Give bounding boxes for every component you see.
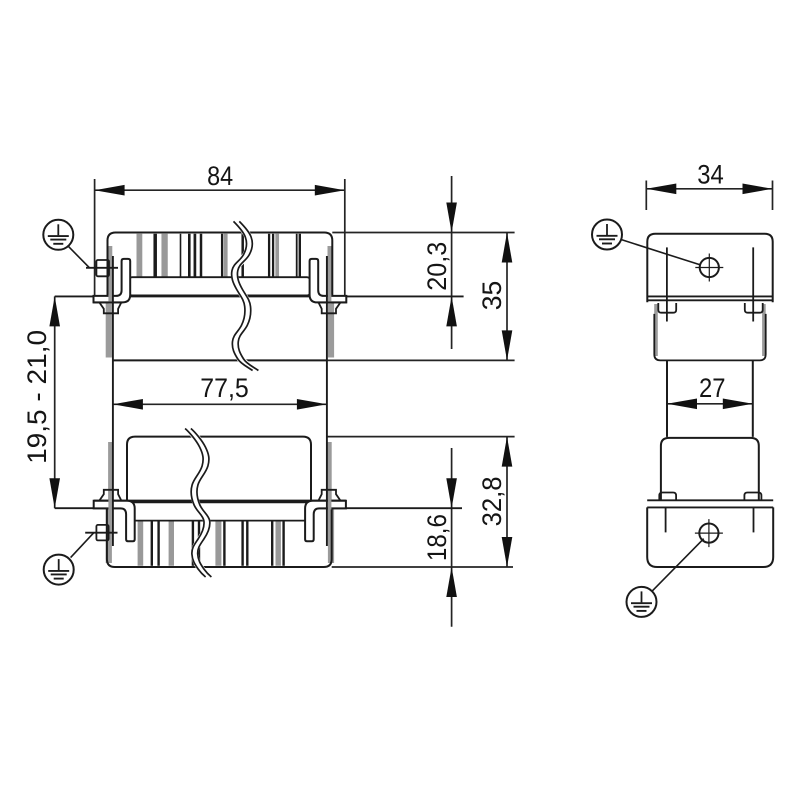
svg-text:35: 35 [477, 281, 507, 311]
svg-text:32,8: 32,8 [477, 476, 507, 526]
svg-text:84: 84 [207, 161, 233, 191]
svg-text:20,3: 20,3 [422, 242, 452, 291]
svg-text:27: 27 [699, 373, 726, 403]
svg-text:34: 34 [697, 160, 724, 190]
svg-text:77,5: 77,5 [200, 373, 249, 403]
svg-text:18,6: 18,6 [422, 514, 452, 561]
svg-text:19,5 - 21,0: 19,5 - 21,0 [22, 330, 52, 464]
